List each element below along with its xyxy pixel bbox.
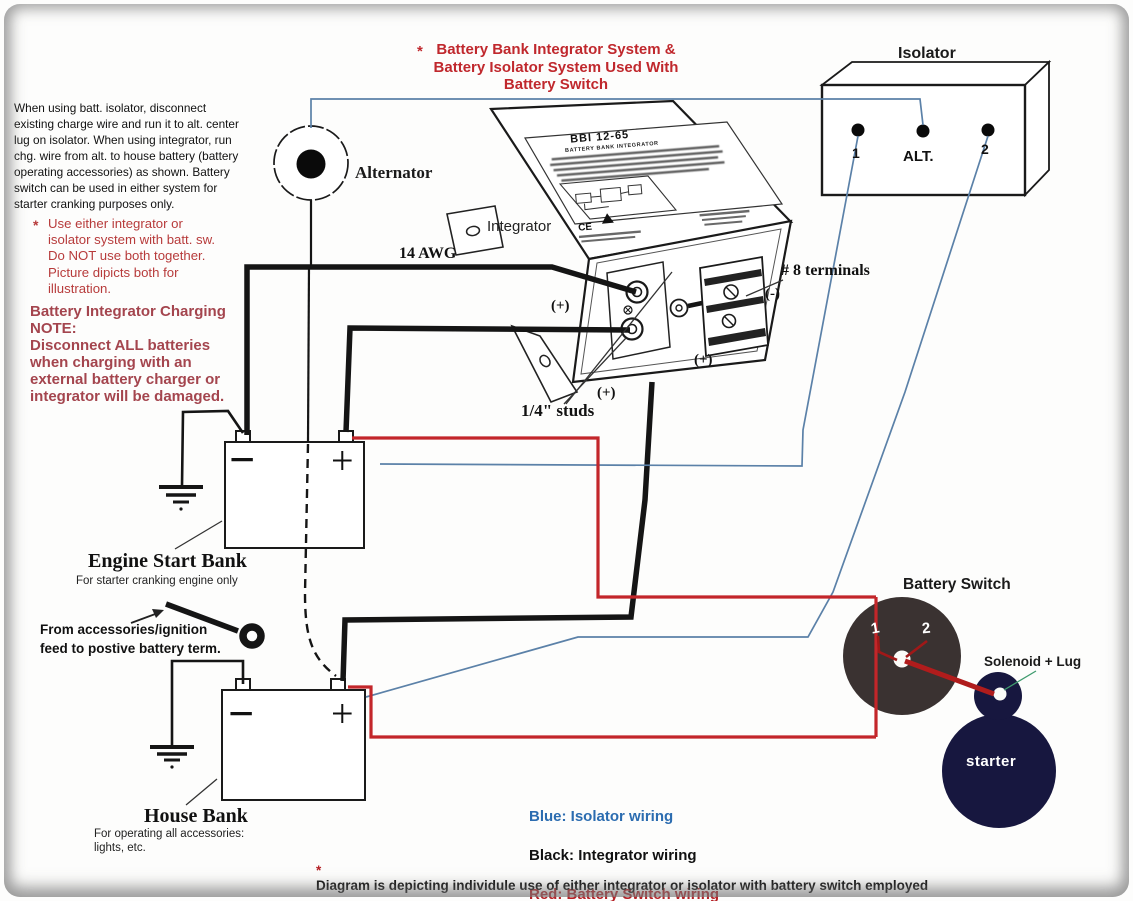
isolator-terminal-2-dot xyxy=(982,124,995,137)
isolator-terminal-1-dot xyxy=(852,124,865,137)
charging-note: Battery Integrator Charging NOTE: Discon… xyxy=(30,303,280,405)
footer-asterisk: * xyxy=(316,863,321,878)
house-bank-title: House Bank xyxy=(144,805,248,828)
wiring-diagram-page: BBI 12-65 BATTERY BANK INTEGRATOR CE xyxy=(0,0,1133,901)
alternator-symbol xyxy=(274,126,348,200)
ce-mark-text: CE xyxy=(578,222,593,234)
isolator-terminal-alt-label: ALT. xyxy=(903,148,934,165)
solenoid-label: Solenoid + Lug xyxy=(984,654,1081,669)
page-title: Battery Bank Integrator System &Battery … xyxy=(430,41,682,94)
switch-pos-2: 2 xyxy=(921,620,931,638)
battery-switch-device xyxy=(843,597,961,715)
house-bank-subtitle: For operating all accessories: lights, e… xyxy=(94,827,244,855)
plus-upper-label: (+) xyxy=(551,298,570,315)
usage-note-asterisk: * xyxy=(33,217,38,233)
starter-device xyxy=(942,672,1056,828)
alternator-label: Alternator xyxy=(355,163,432,183)
usage-note: Use either integrator or isolator system… xyxy=(48,216,278,297)
engine-bank-title: Engine Start Bank xyxy=(88,550,247,573)
isolator-terminal-1-label: 1 xyxy=(852,145,860,161)
isolator-terminal-2-label: 2 xyxy=(981,141,989,157)
minus-terminal-label: (-) xyxy=(765,286,780,303)
intro-note: When using batt. isolator, disconnect ex… xyxy=(14,100,282,212)
wire-engine-pos-to-switch1 xyxy=(352,438,876,597)
plus-block-label: (+) xyxy=(694,352,713,369)
number8-terminal-block xyxy=(700,257,768,356)
wire-gauge-label: 14 AWG xyxy=(399,245,456,263)
integrator-label: Integrator xyxy=(487,218,551,235)
pointer-house-bank xyxy=(186,779,217,805)
battery-switch-title: Battery Switch xyxy=(903,576,1011,594)
isolator-terminal-alt-dot xyxy=(917,125,930,138)
pointer-engine-bank xyxy=(175,521,222,549)
terminals-label: # 8 terminals xyxy=(781,262,870,280)
engine-bank-subtitle: For starter cranking engine only xyxy=(76,574,238,588)
starter-label: starter xyxy=(966,753,1016,770)
plus-lower-label: (+) xyxy=(597,385,616,402)
accessories-note: From accessories/ignition feed to postiv… xyxy=(40,620,221,658)
wire-house-pos-to-switch2 xyxy=(348,687,876,737)
house-bank-plus: + xyxy=(331,694,354,734)
legend-blue: Blue: Isolator wiring xyxy=(529,807,719,827)
integrator-device: BBI 12-65 BATTERY BANK INTEGRATOR CE xyxy=(447,101,791,402)
title-asterisk: * xyxy=(417,43,423,60)
isolator-device xyxy=(822,62,1049,195)
house-bank-minus: − xyxy=(228,691,254,737)
engine-bank-minus: − xyxy=(229,437,255,483)
footer-note: * Diagram is depicting individule use of… xyxy=(316,848,928,893)
engine-bank-plus: + xyxy=(331,441,354,481)
isolator-title: Isolator xyxy=(898,45,956,63)
studs-label: 1/4" studs xyxy=(521,401,594,421)
